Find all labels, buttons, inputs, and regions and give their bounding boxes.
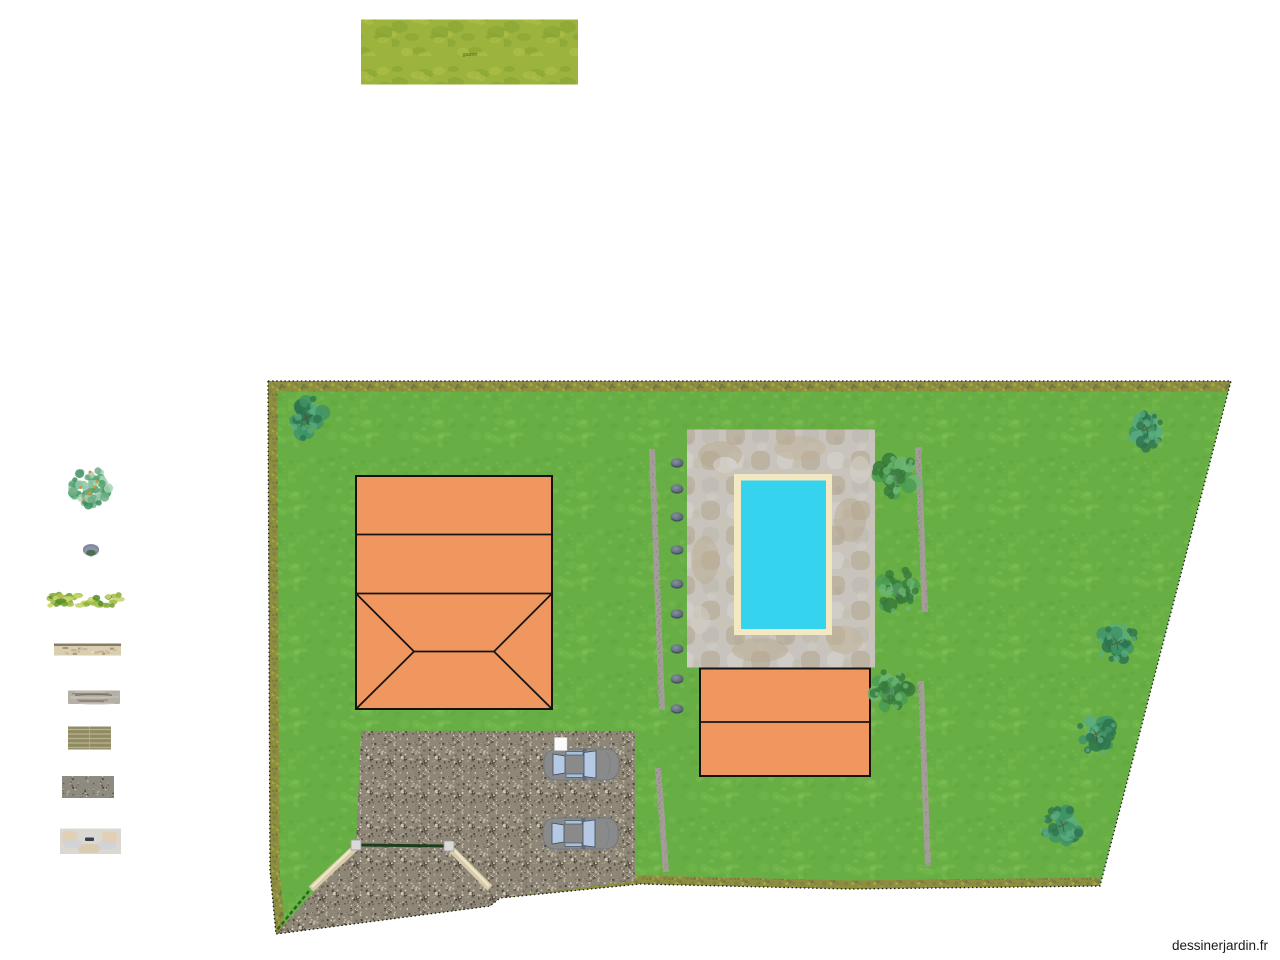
svg-text:gazon: gazon (463, 52, 478, 58)
svg-text:dessinerjardin.fr: dessinerjardin.fr (1172, 938, 1269, 953)
